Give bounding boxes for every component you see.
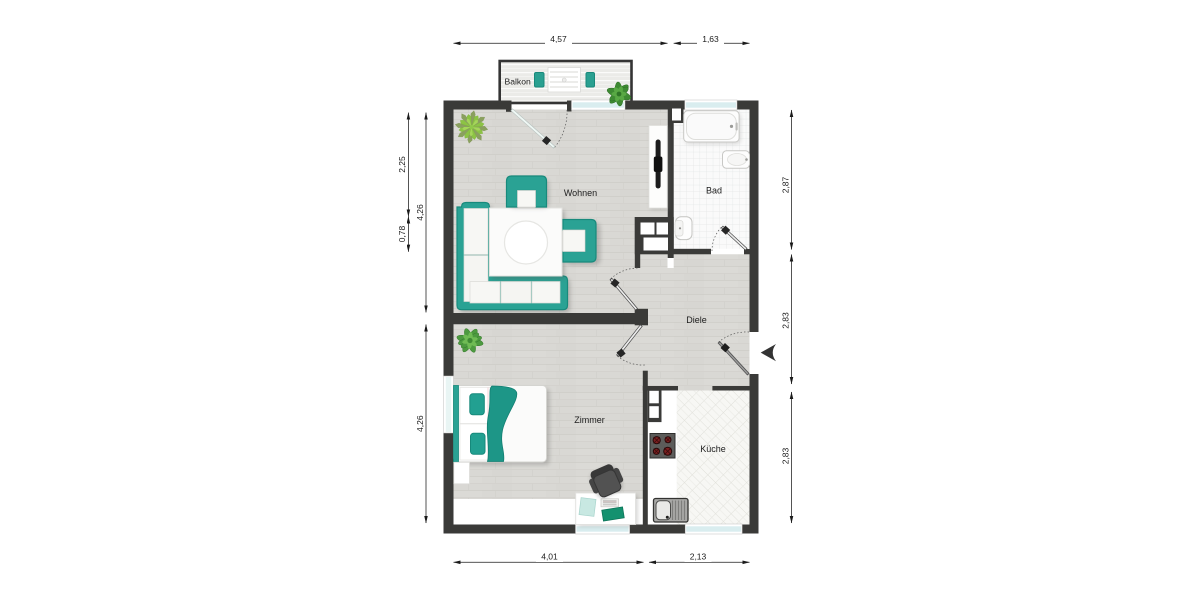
svg-text:Balkon: Balkon xyxy=(505,77,531,87)
svg-text:2,25: 2,25 xyxy=(397,156,407,173)
svg-text:4,26: 4,26 xyxy=(415,204,425,221)
svg-text:Diele: Diele xyxy=(686,315,707,325)
svg-text:1,63: 1,63 xyxy=(702,34,719,44)
svg-text:2,83: 2,83 xyxy=(780,447,790,464)
svg-text:Bad: Bad xyxy=(706,186,722,196)
svg-text:2,13: 2,13 xyxy=(690,552,707,562)
svg-text:Küche: Küche xyxy=(700,444,726,454)
svg-text:2,87: 2,87 xyxy=(780,176,790,193)
svg-text:0,78: 0,78 xyxy=(397,225,407,242)
svg-text:2,83: 2,83 xyxy=(780,312,790,329)
svg-text:4,01: 4,01 xyxy=(541,552,558,562)
svg-text:Zimmer: Zimmer xyxy=(574,415,605,425)
svg-text:4,57: 4,57 xyxy=(550,34,567,44)
svg-text:Wohnen: Wohnen xyxy=(564,188,597,198)
svg-text:4,26: 4,26 xyxy=(415,415,425,432)
